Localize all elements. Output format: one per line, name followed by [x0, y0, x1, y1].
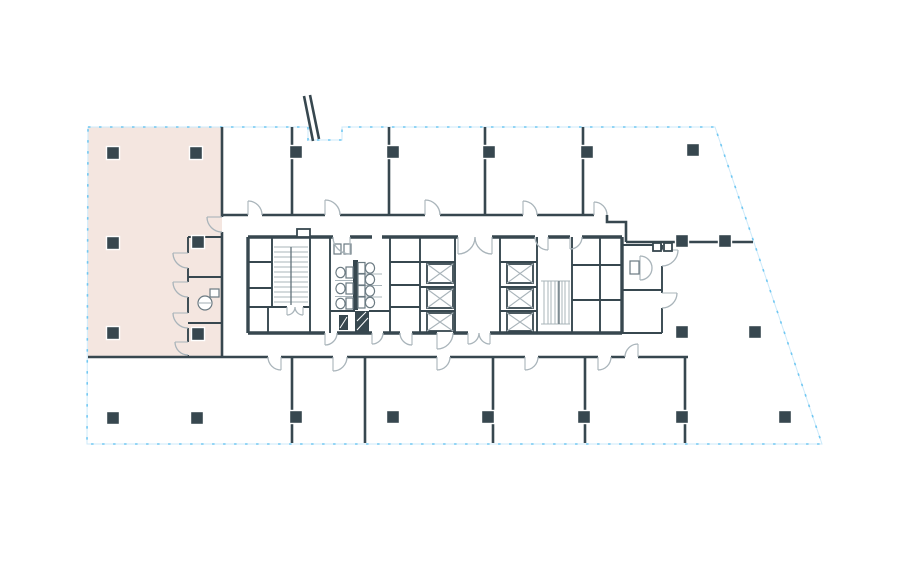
building-core: [248, 229, 622, 333]
elevator-bank-east: [507, 264, 533, 331]
panel-box: [653, 243, 661, 251]
structural-column: [483, 146, 496, 159]
fan-symbol: [640, 256, 652, 280]
structural-column: [581, 146, 594, 159]
structural-column: [107, 412, 120, 425]
core-roof-hatch: [297, 229, 310, 237]
stairwell-east: [541, 281, 570, 324]
structural-column: [290, 411, 303, 424]
suite-fixture-box: [210, 289, 219, 297]
service-room-walls: [622, 245, 662, 333]
structural-column: [107, 237, 120, 250]
panel-box: [664, 243, 672, 251]
canopy-edge: [304, 95, 319, 141]
structural-column: [387, 411, 400, 424]
structural-column: [290, 146, 303, 159]
floor-plan: [0, 0, 900, 570]
structural-column: [687, 144, 700, 157]
south-band-partitions: [292, 357, 685, 443]
structural-column: [387, 146, 400, 159]
structural-column: [779, 411, 792, 424]
floor-plan-canvas: [0, 0, 900, 570]
structural-column: [676, 235, 689, 248]
structural-column: [749, 326, 762, 339]
structural-column: [192, 328, 205, 341]
stairwell-west: [274, 247, 308, 305]
structural-column: [676, 326, 689, 339]
structural-column: [578, 411, 591, 424]
wc-area: [334, 244, 382, 333]
elevator-bank-west: [427, 264, 453, 331]
structural-column: [719, 235, 732, 248]
structural-column: [107, 327, 120, 340]
structural-column: [191, 412, 204, 425]
structural-column: [482, 411, 495, 424]
structural-column: [192, 236, 205, 249]
structural-column: [676, 411, 689, 424]
equipment-box: [630, 261, 639, 274]
structural-column: [190, 147, 203, 160]
structural-column: [107, 147, 120, 160]
